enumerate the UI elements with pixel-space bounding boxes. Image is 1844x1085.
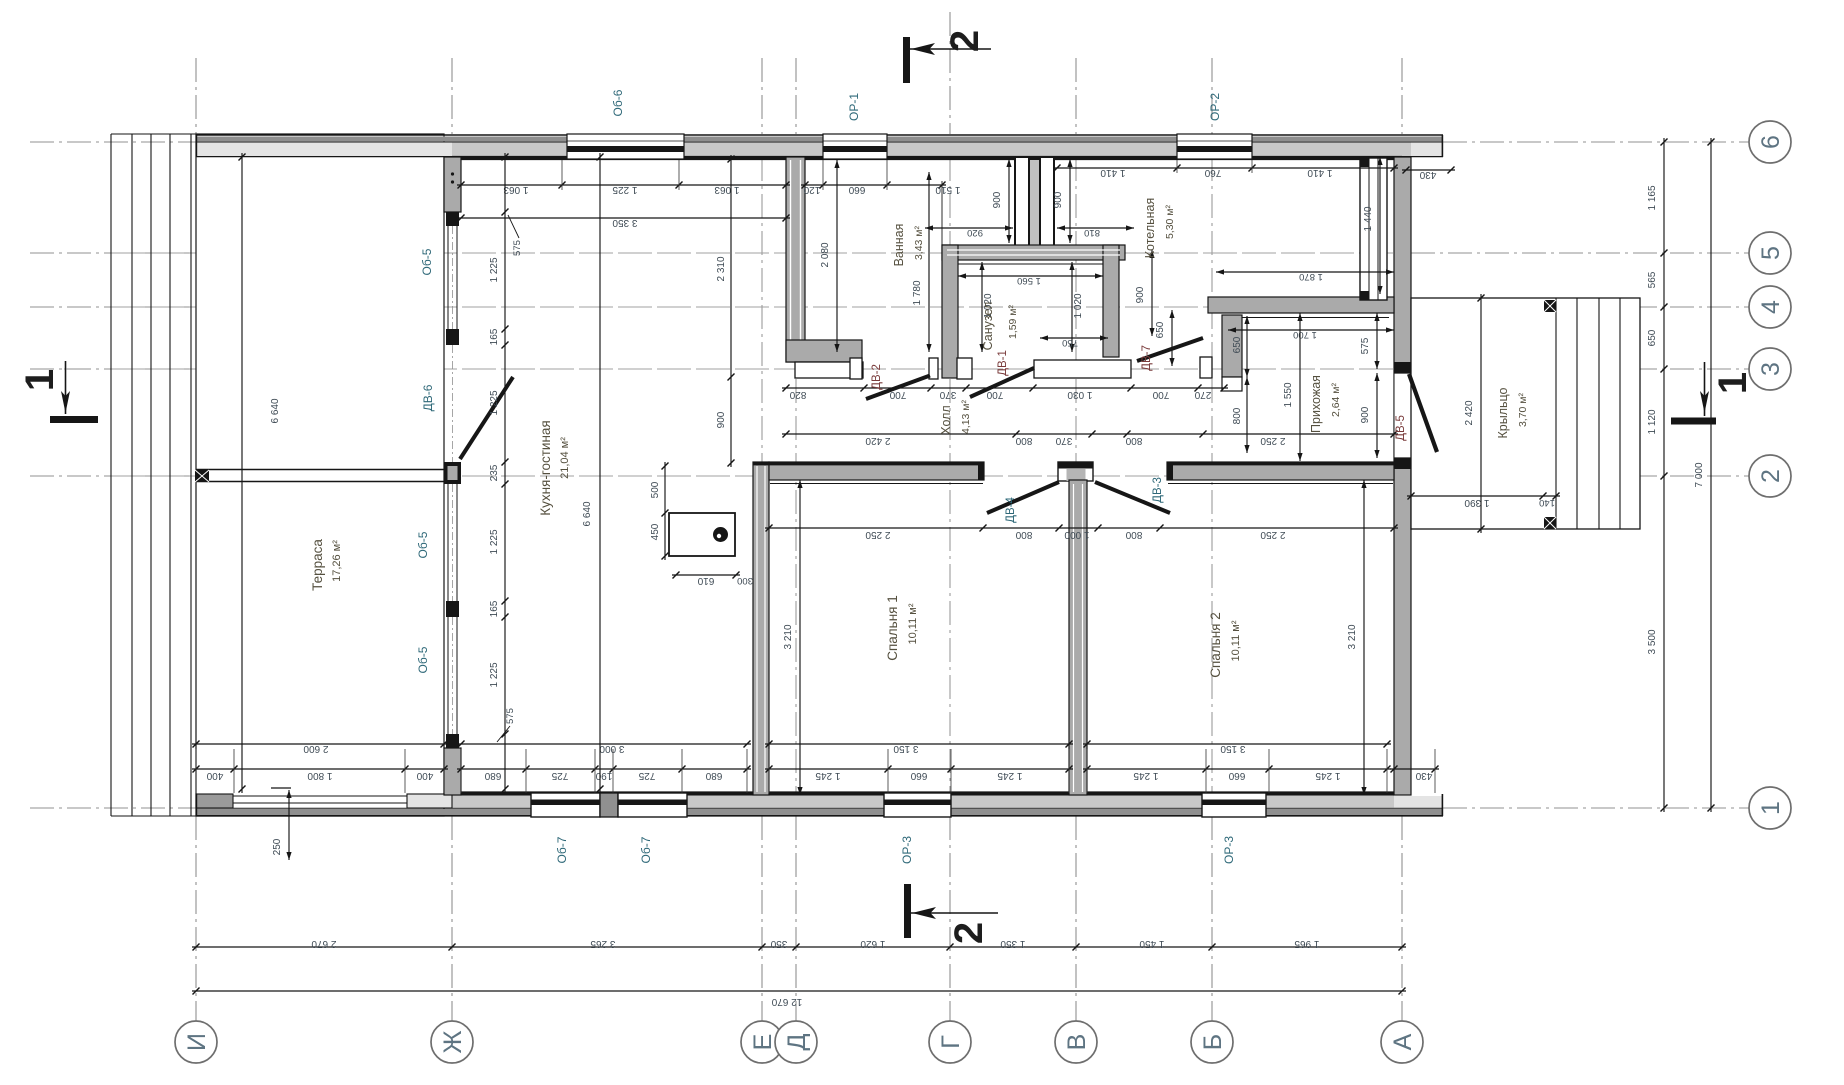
svg-text:350: 350	[770, 938, 787, 949]
svg-text:Крыльцо: Крыльцо	[1496, 387, 1510, 438]
svg-text:Ж: Ж	[439, 1030, 467, 1053]
svg-text:370: 370	[1055, 435, 1072, 446]
svg-text:810: 810	[1084, 227, 1100, 238]
svg-text:1 245: 1 245	[1133, 770, 1158, 781]
svg-text:900: 900	[992, 191, 1003, 208]
svg-text:ОР-2: ОР-2	[1208, 93, 1222, 121]
svg-text:190: 190	[595, 770, 612, 781]
svg-text:1 063: 1 063	[714, 184, 739, 195]
svg-text:Холл: Холл	[939, 405, 953, 434]
svg-text:17,26 м²: 17,26 м²	[331, 540, 343, 582]
svg-text:760: 760	[1204, 167, 1221, 178]
svg-text:1 245: 1 245	[1315, 770, 1340, 781]
svg-text:В: В	[1063, 1034, 1091, 1051]
svg-text:1 620: 1 620	[860, 938, 885, 949]
svg-text:ДВ-2: ДВ-2	[871, 364, 883, 390]
svg-text:235: 235	[489, 464, 500, 481]
svg-text:800: 800	[1125, 435, 1142, 446]
svg-text:1 550: 1 550	[1283, 382, 1294, 407]
svg-text:ОР-3: ОР-3	[1222, 836, 1236, 864]
svg-text:800: 800	[1015, 529, 1032, 540]
svg-text:1 063: 1 063	[503, 184, 528, 195]
svg-text:3 350: 3 350	[612, 217, 637, 228]
svg-text:Прихожая: Прихожая	[1309, 375, 1323, 433]
svg-text:1 020: 1 020	[1073, 293, 1084, 318]
svg-text:1 800: 1 800	[307, 770, 332, 781]
svg-text:6 640: 6 640	[582, 501, 593, 526]
svg-text:610: 610	[697, 575, 714, 586]
svg-text:1 410: 1 410	[1100, 167, 1125, 178]
svg-text:700: 700	[889, 389, 906, 400]
svg-text:800: 800	[1232, 407, 1243, 424]
svg-text:2 250: 2 250	[1260, 435, 1285, 446]
svg-text:1 965: 1 965	[1294, 938, 1319, 949]
svg-text:3,43 м²: 3,43 м²	[913, 225, 925, 260]
svg-text:Терраса: Терраса	[310, 539, 325, 591]
svg-text:ДВ-7: ДВ-7	[1141, 345, 1153, 371]
svg-text:Г: Г	[937, 1035, 965, 1049]
svg-text:575: 575	[512, 240, 523, 256]
svg-text:10,11 м²: 10,11 м²	[907, 603, 919, 644]
svg-text:900: 900	[716, 411, 727, 428]
svg-text:660: 660	[910, 770, 927, 781]
svg-text:Б: Б	[1199, 1034, 1227, 1050]
svg-text:2 250: 2 250	[1260, 529, 1285, 540]
svg-text:1 245: 1 245	[815, 770, 840, 781]
svg-text:800: 800	[1015, 435, 1032, 446]
svg-text:165: 165	[489, 328, 500, 345]
svg-text:Об-5: Об-5	[420, 248, 434, 275]
svg-text:820: 820	[789, 389, 806, 400]
svg-text:725: 725	[638, 770, 655, 781]
svg-text:650: 650	[1155, 321, 1166, 338]
svg-text:7 000: 7 000	[1694, 462, 1705, 487]
svg-text:Спальня 2: Спальня 2	[1208, 612, 1223, 678]
svg-text:1 225: 1 225	[489, 257, 500, 282]
svg-text:ДВ-6: ДВ-6	[421, 384, 435, 411]
svg-text:2 420: 2 420	[1464, 400, 1475, 425]
svg-text:1 165: 1 165	[1647, 185, 1658, 210]
svg-text:3 265: 3 265	[590, 938, 615, 949]
svg-text:650: 650	[1232, 336, 1243, 353]
svg-text:4,13 м²: 4,13 м²	[960, 399, 972, 434]
svg-text:1 245: 1 245	[997, 770, 1022, 781]
svg-text:2 250: 2 250	[865, 529, 890, 540]
svg-text:1: 1	[18, 369, 62, 391]
svg-text:1 000: 1 000	[1064, 529, 1089, 540]
svg-text:1 030: 1 030	[1067, 389, 1092, 400]
svg-text:10,11 м²: 10,11 м²	[1230, 620, 1242, 661]
svg-text:2: 2	[947, 922, 991, 944]
svg-text:725: 725	[551, 770, 568, 781]
svg-text:900: 900	[1053, 191, 1064, 208]
svg-text:2,64 м²: 2,64 м²	[1330, 382, 1342, 417]
svg-text:2 420: 2 420	[865, 435, 890, 446]
svg-text:12 670: 12 670	[771, 996, 802, 1007]
svg-text:ДВ-4: ДВ-4	[1005, 497, 1017, 523]
svg-text:21,04 м²: 21,04 м²	[559, 437, 571, 479]
svg-text:Е: Е	[749, 1034, 777, 1051]
svg-text:1 120: 1 120	[1647, 409, 1658, 434]
svg-text:Котельная: Котельная	[1143, 198, 1157, 259]
svg-text:430: 430	[1419, 169, 1436, 180]
svg-text:Ванная: Ванная	[892, 224, 906, 267]
svg-text:2 600: 2 600	[303, 743, 328, 754]
svg-text:2 670: 2 670	[311, 938, 336, 949]
svg-text:565: 565	[1647, 271, 1658, 288]
svg-text:6: 6	[1757, 135, 1785, 149]
svg-text:2: 2	[943, 30, 987, 52]
svg-text:Об-5: Об-5	[416, 646, 430, 673]
svg-text:2: 2	[1757, 469, 1785, 483]
svg-text:920: 920	[967, 227, 983, 238]
svg-text:900: 900	[1135, 286, 1146, 303]
svg-text:165: 165	[489, 600, 500, 617]
svg-text:650: 650	[1647, 329, 1658, 346]
svg-text:2 310: 2 310	[716, 256, 727, 281]
svg-text:140: 140	[1539, 497, 1555, 508]
svg-text:ОР-3: ОР-3	[900, 836, 914, 864]
svg-text:300: 300	[737, 575, 753, 586]
svg-text:400: 400	[206, 770, 223, 781]
svg-text:3 000: 3 000	[599, 743, 624, 754]
svg-text:1 870: 1 870	[1299, 271, 1323, 282]
svg-text:1 510: 1 510	[935, 184, 960, 195]
svg-text:Об-6: Об-6	[611, 89, 625, 116]
svg-text:1 350: 1 350	[1000, 938, 1025, 949]
svg-text:ОР-1: ОР-1	[847, 93, 861, 121]
svg-text:И: И	[183, 1033, 211, 1051]
svg-text:3 210: 3 210	[1347, 624, 1358, 649]
svg-text:1 450: 1 450	[1139, 938, 1164, 949]
svg-text:1 390: 1 390	[1464, 497, 1489, 508]
svg-text:120: 120	[803, 184, 820, 195]
svg-text:Кухня-гостиная: Кухня-гостиная	[538, 420, 553, 516]
svg-text:430: 430	[1415, 770, 1432, 781]
svg-text:250: 250	[272, 838, 283, 855]
svg-text:575: 575	[505, 708, 516, 724]
svg-text:Спальня 1: Спальня 1	[885, 595, 900, 661]
svg-text:400: 400	[416, 770, 433, 781]
svg-text:1 225: 1 225	[612, 184, 637, 195]
svg-text:450: 450	[650, 523, 661, 540]
svg-text:1 700: 1 700	[1293, 329, 1317, 340]
svg-text:680: 680	[484, 770, 501, 781]
svg-text:3 150: 3 150	[893, 743, 918, 754]
svg-text:А: А	[1389, 1033, 1417, 1050]
svg-text:ДВ-3: ДВ-3	[1152, 477, 1164, 503]
svg-text:ДВ-1: ДВ-1	[997, 350, 1009, 376]
svg-text:3 500: 3 500	[1647, 629, 1658, 654]
svg-text:ДВ-5: ДВ-5	[1395, 415, 1407, 441]
svg-text:Об-7: Об-7	[639, 836, 653, 863]
svg-text:270: 270	[1194, 389, 1211, 400]
svg-text:3 210: 3 210	[783, 624, 794, 649]
svg-text:1: 1	[1757, 801, 1785, 815]
svg-text:1 225: 1 225	[489, 529, 500, 554]
svg-text:660: 660	[1228, 770, 1245, 781]
svg-text:1: 1	[1711, 372, 1755, 394]
svg-text:5: 5	[1757, 246, 1785, 260]
svg-text:575: 575	[1360, 337, 1371, 354]
svg-text:3: 3	[1757, 362, 1785, 376]
svg-text:4: 4	[1757, 300, 1785, 314]
svg-text:800: 800	[1125, 529, 1142, 540]
svg-text:Об-7: Об-7	[555, 836, 569, 863]
svg-text:Санузел: Санузел	[981, 302, 995, 351]
svg-text:1 225: 1 225	[489, 390, 500, 415]
svg-text:3 150: 3 150	[1220, 743, 1245, 754]
svg-text:500: 500	[650, 481, 661, 498]
svg-text:1 410: 1 410	[1307, 167, 1332, 178]
svg-text:680: 680	[705, 770, 722, 781]
svg-text:750: 750	[1062, 337, 1078, 348]
svg-text:1 780: 1 780	[912, 280, 923, 305]
svg-text:1,59 м²: 1,59 м²	[1007, 304, 1019, 339]
svg-text:6 640: 6 640	[270, 398, 281, 423]
svg-text:3,70 м²: 3,70 м²	[1517, 392, 1529, 427]
svg-text:700: 700	[986, 389, 1003, 400]
svg-text:1 560: 1 560	[1017, 275, 1041, 286]
svg-text:5,30 м²: 5,30 м²	[1164, 204, 1176, 239]
svg-text:700: 700	[1152, 389, 1169, 400]
svg-text:Об-5: Об-5	[416, 531, 430, 558]
svg-text:2 080: 2 080	[820, 242, 831, 267]
svg-text:370: 370	[939, 389, 956, 400]
svg-text:660: 660	[848, 184, 865, 195]
svg-text:900: 900	[1360, 406, 1371, 423]
svg-text:1 225: 1 225	[489, 662, 500, 687]
svg-text:1 440: 1 440	[1363, 206, 1374, 231]
svg-text:Д: Д	[783, 1033, 811, 1050]
